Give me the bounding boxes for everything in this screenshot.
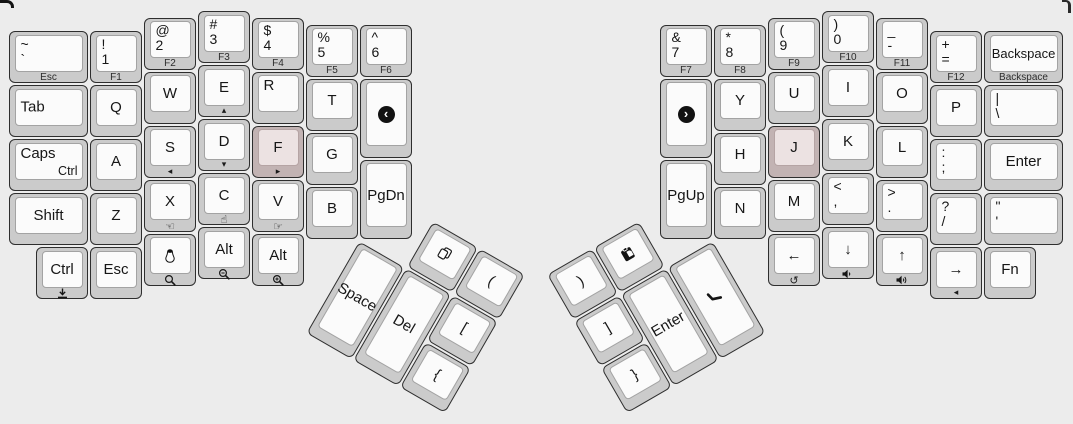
keycap-top: [418, 227, 472, 280]
zoom-in-icon: [272, 274, 284, 286]
key-legend: ↑: [883, 238, 922, 273]
keycap-front: F5: [307, 66, 357, 77]
keycap-top: $4: [258, 21, 299, 58]
hand-pointing-right-icon: ☞: [273, 221, 283, 232]
keycap-top: Fn: [990, 251, 1031, 288]
page-corner-artifact-right: [1062, 0, 1071, 13]
key-legend: Esc: [97, 252, 136, 287]
page-corner-artifact-left: [0, 0, 14, 8]
key-e[interactable]: E▴: [198, 65, 250, 117]
keycap-front: F9: [769, 59, 819, 70]
keycap-top: !1: [96, 35, 137, 72]
key-tab[interactable]: Tab: [9, 85, 88, 137]
keycap-top: O: [882, 75, 923, 112]
keycap-top: Q: [96, 89, 137, 126]
key-legend-stack: ~`: [21, 37, 29, 67]
keycap-front: F8: [715, 66, 765, 77]
key-legend: I: [829, 70, 868, 105]
key-legend: B: [313, 191, 352, 226]
key-arrow-down[interactable]: ↓: [822, 227, 874, 279]
keycap-top: (: [464, 254, 518, 307]
keycap-top: Y: [720, 82, 761, 119]
keycap-top: H: [720, 136, 761, 173]
key-equals[interactable]: +=F12: [930, 31, 982, 83]
key-legend-stack: |\: [996, 91, 1000, 121]
key-enter[interactable]: Enter: [984, 139, 1063, 191]
key-legend: S: [151, 130, 190, 165]
key-legend: V: [259, 184, 298, 219]
keycap-top: ‹: [366, 82, 407, 146]
key-arrow-left[interactable]: ←↺: [768, 234, 820, 286]
keycap-top: Esc: [96, 251, 137, 288]
key-i[interactable]: I: [822, 65, 874, 117]
key-legend-stack: ?/: [942, 199, 950, 229]
key-z[interactable]: Z: [90, 193, 142, 245]
key-legend: K: [829, 124, 868, 159]
key-legend: (: [466, 255, 517, 305]
keycap-top: %5: [312, 28, 353, 65]
key-linux[interactable]: [144, 234, 196, 286]
key-legend-stack: %5: [318, 30, 330, 60]
keycap-top: X: [150, 183, 191, 220]
key-sublegend: Ctrl: [58, 164, 77, 178]
keycap-top: *8: [720, 28, 761, 65]
keycap-top: Alt: [258, 237, 299, 274]
keycap-front: [877, 275, 927, 286]
key-ctrl[interactable]: Ctrl: [36, 247, 88, 299]
key-8[interactable]: *8F8: [714, 25, 766, 77]
key-r[interactable]: R: [252, 72, 304, 124]
keycap-top: |\: [990, 89, 1058, 126]
key-b[interactable]: B: [306, 187, 358, 239]
keycap-front: F4: [253, 59, 303, 70]
key-legend-stack: +=: [942, 37, 950, 67]
key-minus[interactable]: _-F11: [876, 18, 928, 70]
key-legend-stack: (9: [780, 23, 788, 53]
triangle-down-icon: ▾: [222, 160, 227, 171]
key-legend: M: [775, 184, 814, 219]
key-legend: X: [151, 184, 190, 219]
key-v[interactable]: V☞: [252, 180, 304, 232]
key-legend-stack: )0: [834, 17, 842, 47]
keycap-top: (9: [774, 21, 815, 58]
keycap-top: K: [828, 123, 869, 160]
keycap-top: :;: [936, 143, 977, 180]
keycap-top: S: [150, 129, 191, 166]
keycap-top: ›: [666, 82, 707, 146]
key-2[interactable]: @2F2: [144, 18, 196, 70]
keycap-front: F10: [823, 52, 873, 63]
key-legend-stack: "': [996, 199, 1001, 229]
triangle-left-icon: ◂: [954, 288, 959, 299]
keycap-front: ◂: [931, 288, 981, 299]
keycap-front: ▴: [199, 106, 249, 117]
key-legend-stack: $4: [264, 23, 272, 53]
keycap-front: ▾: [199, 160, 249, 171]
copy-icon: [435, 244, 454, 263]
key-9[interactable]: (9F9: [768, 18, 820, 70]
key-legend: L: [883, 130, 922, 165]
key-backslash[interactable]: |\: [984, 85, 1063, 137]
key-n[interactable]: N: [714, 187, 766, 239]
key-s[interactable]: S◂: [144, 126, 196, 178]
keycap-top: )0: [828, 15, 869, 52]
keycap-top: C: [204, 177, 245, 214]
volume-down-icon: [842, 269, 854, 279]
phone-icon: [704, 286, 725, 307]
keycap-top: ↓: [828, 231, 869, 268]
key-legend-stack: <,: [834, 179, 842, 209]
key-6[interactable]: ^6F6: [360, 25, 412, 77]
key-slash[interactable]: ?/: [930, 193, 982, 245]
key-arrow-up[interactable]: ↑: [876, 234, 928, 286]
key-w[interactable]: W: [144, 72, 196, 124]
key-legend: D: [205, 124, 244, 159]
keycap-front: F3: [199, 52, 249, 63]
key-4[interactable]: $4F4: [252, 18, 304, 70]
keycap-top: &7: [666, 28, 707, 65]
key-legend: H: [721, 137, 760, 172]
key-a[interactable]: A: [90, 139, 142, 191]
key-legend: Caps: [21, 145, 56, 162]
key-legend: Q: [97, 90, 136, 125]
keycap-top: +=: [936, 35, 977, 72]
key-c[interactable]: C☝: [198, 173, 250, 225]
key-legend: G: [313, 137, 352, 172]
triangle-left-icon: ◂: [168, 167, 173, 178]
key-legend: A: [97, 144, 136, 179]
keycap-top: Alt: [204, 231, 245, 268]
key-arrow-right[interactable]: →◂: [930, 247, 982, 299]
key-legend: J: [775, 130, 814, 165]
keycap-front: F11: [877, 59, 927, 70]
keycap-top: #3: [204, 15, 245, 52]
keycap-front: Backspace: [985, 72, 1062, 83]
key-media-previous[interactable]: ‹: [360, 79, 412, 158]
keycap-front: ☞: [253, 221, 303, 232]
key-legend: Shift: [16, 198, 82, 233]
key-0[interactable]: )0F10: [822, 11, 874, 63]
keycap-top: V: [258, 183, 299, 220]
keycap-front: F2: [145, 59, 195, 70]
keycap-top: ~`: [15, 35, 83, 72]
keycap-front: F12: [931, 72, 981, 83]
key-legend-stack: @2: [156, 23, 170, 53]
key-q[interactable]: Q: [90, 85, 142, 137]
key-legend: Tab: [21, 99, 45, 116]
key-k[interactable]: K: [822, 119, 874, 171]
penguin-icon: [164, 249, 176, 263]
keycap-top: L: [882, 129, 923, 166]
key-legend: Alt: [205, 232, 244, 267]
keycap-top: N: [720, 190, 761, 227]
key-period[interactable]: >.: [876, 180, 928, 232]
key-m[interactable]: M: [768, 180, 820, 232]
keycap-front: F7: [661, 66, 711, 77]
hand-pointing-left-icon: ☜: [165, 221, 175, 232]
keyboard-layout-canvas: ~`Esc!1F1@2F2#3F3$4F4%5F5^6F6TabQWE▴RT‹C…: [0, 0, 1073, 424]
keycap-top: Backspace: [990, 35, 1058, 72]
key-7[interactable]: &7F7: [660, 25, 712, 77]
keycap-top: <,: [828, 177, 869, 214]
key-3[interactable]: #3F3: [198, 11, 250, 63]
key-comma[interactable]: <,: [822, 173, 874, 225]
key-t[interactable]: T: [306, 79, 358, 131]
key-legend: F: [259, 130, 298, 165]
keycap-top: U: [774, 75, 815, 112]
triangle-up-icon: ▴: [222, 106, 227, 117]
key-legend: P: [937, 90, 976, 125]
key-legend-stack: !1: [102, 37, 110, 67]
key-legend: ↓: [829, 232, 868, 267]
keycap-front: ☝: [199, 214, 249, 225]
key-grave[interactable]: ~`Esc: [9, 31, 88, 83]
key-fn[interactable]: Fn: [984, 247, 1036, 299]
key-backspace[interactable]: BackspaceBackspace: [984, 31, 1063, 83]
key-legend-stack: _-: [888, 23, 896, 53]
keycap-front: Esc: [10, 72, 87, 83]
key-p[interactable]: P: [930, 85, 982, 137]
key-y[interactable]: Y: [714, 79, 766, 131]
key-legend: T: [313, 83, 352, 118]
key-o[interactable]: O: [876, 72, 928, 124]
key-semicolon[interactable]: :;: [930, 139, 982, 191]
keycap-top: W: [150, 75, 191, 112]
key-legend: Alt: [259, 238, 298, 273]
key-legend: ): [555, 255, 606, 305]
key-h[interactable]: H: [714, 133, 766, 185]
keycap-top: CapsCtrl: [15, 143, 83, 180]
keycap-top: ): [554, 254, 608, 307]
keycap-top: Ctrl: [42, 251, 83, 288]
triangle-right-icon: ▸: [276, 167, 281, 178]
key-u[interactable]: U: [768, 72, 820, 124]
keycap-top: P: [936, 89, 977, 126]
key-shift[interactable]: Shift: [9, 193, 88, 245]
key-legend-stack: #3: [210, 17, 218, 47]
key-legend: Z: [97, 198, 136, 233]
keycap-top: "': [990, 197, 1058, 234]
volume-up-icon: [896, 275, 909, 285]
paste-icon: [618, 244, 636, 263]
key-legend-stack: :;: [942, 145, 946, 175]
key-g[interactable]: G: [306, 133, 358, 185]
key-legend: Enter: [991, 144, 1057, 179]
keycap-top: ←: [774, 237, 815, 274]
key-x[interactable]: X☜: [144, 180, 196, 232]
keycap-top: Shift: [15, 197, 83, 234]
key-legend-stack: *8: [726, 30, 734, 60]
keycap-top: Enter: [990, 143, 1058, 180]
key-legend-stack: &7: [672, 30, 681, 60]
keycap-top: G: [312, 136, 353, 173]
keycap-top: ↑: [882, 237, 923, 274]
key-quote[interactable]: "': [984, 193, 1063, 245]
key-legend: Backspace: [991, 36, 1057, 71]
keycap-front: ↺: [769, 275, 819, 286]
keycap-top: E: [204, 69, 245, 106]
key-legend: N: [721, 191, 760, 226]
keycap-front: [199, 268, 249, 279]
key-legend: →: [937, 252, 976, 287]
keycap-front: [253, 275, 303, 286]
keycap-front: [823, 268, 873, 279]
keycap-top: D: [204, 123, 245, 160]
keycap-top: [150, 237, 191, 274]
key-legend-stack: ^6: [372, 30, 380, 60]
keycap-top: ^6: [366, 28, 407, 65]
key-legend: Fn: [991, 252, 1030, 287]
keycap-top: [600, 227, 654, 280]
keycap-front: F1: [91, 72, 141, 83]
key-media-next[interactable]: ›: [660, 79, 712, 158]
key-legend: Y: [721, 83, 760, 118]
key-5[interactable]: %5F5: [306, 25, 358, 77]
keycap-front: [145, 275, 195, 286]
keycap-top: M: [774, 183, 815, 220]
key-caps[interactable]: CapsCtrl: [9, 139, 88, 191]
key-legend: R: [264, 77, 275, 94]
keycap-top: Z: [96, 197, 137, 234]
key-l[interactable]: L: [876, 126, 928, 178]
keycap-top: T: [312, 82, 353, 119]
keycap-top: Tab: [15, 89, 83, 126]
key-legend: O: [883, 76, 922, 111]
keycap-top: J: [774, 129, 815, 166]
keycap-top: _-: [882, 21, 923, 58]
search-icon: [164, 274, 176, 286]
key-d[interactable]: D▾: [198, 119, 250, 171]
key-legend: C: [205, 178, 244, 213]
keycap-top: @2: [150, 21, 191, 58]
keycap-top: →: [936, 251, 977, 288]
keycap-top: B: [312, 190, 353, 227]
keycap-front: ▸: [253, 167, 303, 178]
keycap-front: ☜: [145, 221, 195, 232]
keycap-top: A: [96, 143, 137, 180]
keycap-top: F: [258, 129, 299, 166]
key-j[interactable]: J: [768, 126, 820, 178]
key-1[interactable]: !1F1: [90, 31, 142, 83]
media-next-icon: ›: [678, 106, 695, 123]
key-legend: E: [205, 70, 244, 105]
key-f[interactable]: F▸: [252, 126, 304, 178]
zoom-out-icon: [218, 268, 230, 280]
keycap-front: F6: [361, 66, 411, 77]
key-alt-2[interactable]: Alt: [252, 234, 304, 286]
key-legend: Ctrl: [43, 252, 82, 287]
keycap-top: R: [258, 75, 299, 112]
keycap-front: [37, 288, 87, 299]
undo-icon: ↺: [789, 275, 798, 286]
key-legend-stack: >.: [888, 185, 896, 215]
key-legend: W: [151, 76, 190, 111]
keycap-top: >.: [882, 183, 923, 220]
download-icon: [57, 288, 68, 299]
key-esc[interactable]: Esc: [90, 247, 142, 299]
keycap-front: ◂: [145, 167, 195, 178]
key-legend: U: [775, 76, 814, 111]
keycap-top: ?/: [936, 197, 977, 234]
hand-pointing-up-icon: ☝: [221, 214, 228, 225]
key-legend: ←: [775, 238, 814, 273]
key-alt-1[interactable]: Alt: [198, 227, 250, 279]
media-previous-icon: ‹: [378, 106, 395, 123]
keycap-top: I: [828, 69, 869, 106]
